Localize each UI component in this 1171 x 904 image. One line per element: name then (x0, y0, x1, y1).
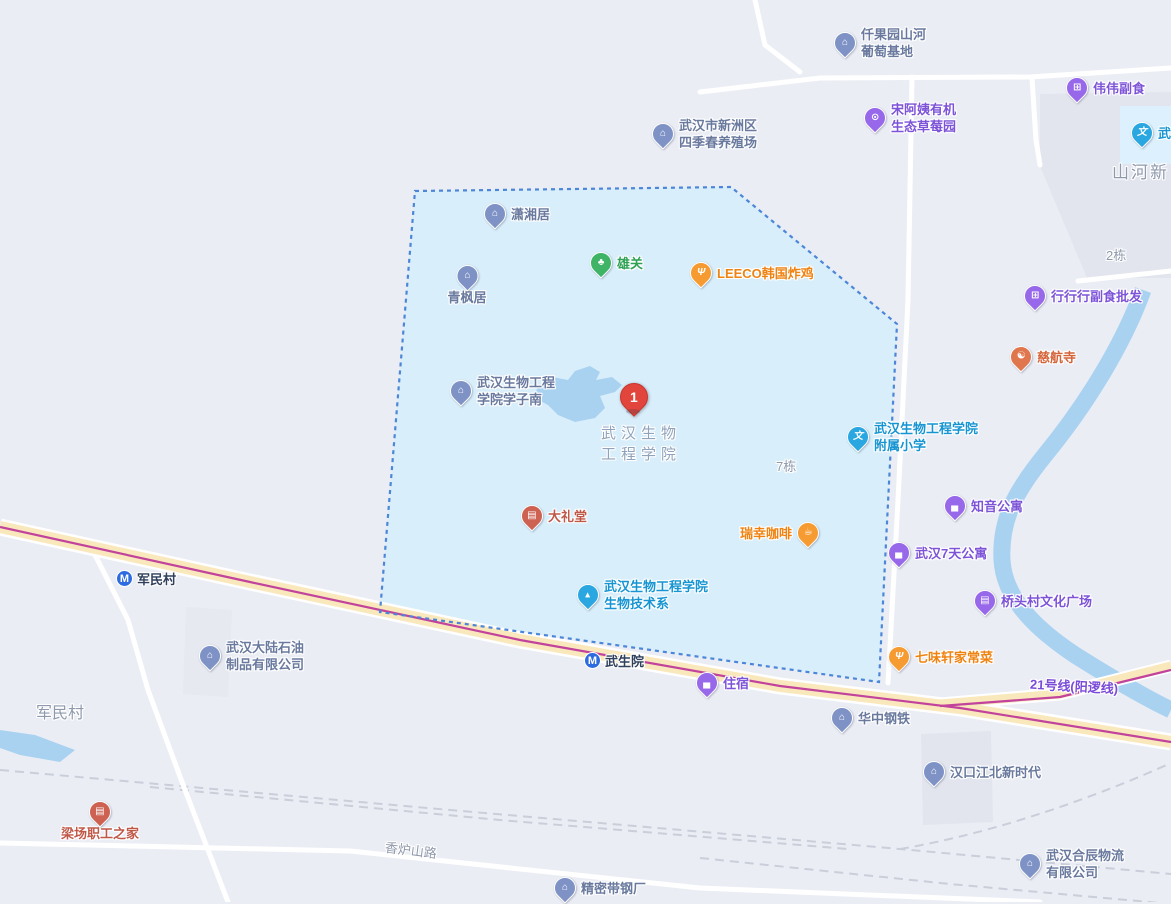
bed-icon: ▄ (939, 490, 970, 521)
building-icon: ⌂ (826, 702, 857, 733)
poi-cihang-temple[interactable]: ☯ 慈航寺 (1010, 346, 1076, 368)
poi-qiaotoucun-culture-square[interactable]: ▤ 桥头村文化广场 (974, 590, 1092, 612)
school-icon: 文 (842, 421, 873, 452)
shopping-cart-icon: ⊞ (1019, 280, 1050, 311)
marker-shadow (626, 409, 640, 414)
poi-xiaoxiangju[interactable]: ⌂ 潇湘居 (484, 203, 550, 225)
food-icon: Ψ (685, 257, 716, 288)
poi-leeco-fried-chicken[interactable]: Ψ LEECO韩国炸鸡 (690, 262, 814, 284)
building-icon: ⌂ (451, 260, 482, 291)
poi-songayi-strawberry-farm[interactable]: ⊙ 宋阿姨有机 生态草莓园 (864, 101, 956, 135)
area-label-shanhexin: 山河新 (1112, 162, 1169, 183)
poi-weiwei-grocery[interactable]: ⊞ 伟伟副食 (1066, 77, 1145, 99)
poi-zhiyin-apartment[interactable]: ▄ 知音公寓 (944, 495, 1023, 517)
bed-icon: ▄ (883, 537, 914, 568)
poi-affiliated-primary-school[interactable]: 文 武汉生物工程学院 附属小学 (847, 420, 978, 454)
poi-hankou-jiangbei[interactable]: ⌂ 汉口江北新时代 (923, 761, 1041, 783)
building-icon: ⌂ (918, 756, 949, 787)
building-icon: ⌂ (1014, 848, 1045, 879)
building-icon: ⌂ (647, 118, 678, 149)
building-icon: ⌂ (445, 375, 476, 406)
controller-icon: ⊙ (859, 102, 890, 133)
poi-school-clipped[interactable]: 文 武 (1131, 122, 1171, 144)
pond (0, 730, 75, 762)
poi-qingfengju[interactable]: ⌂ 青枫居 (447, 265, 486, 306)
area-label-building-2: 2栋 (1106, 245, 1126, 266)
area-label-building-7: 7栋 (776, 456, 796, 477)
poi-sijichun-farm[interactable]: ⌂ 武汉市新洲区 四季春养殖场 (652, 117, 757, 151)
theater-icon: ▤ (84, 796, 115, 827)
area-label-campus-name: 武汉生物 工程学院 (601, 423, 681, 465)
metro-icon: M (116, 570, 133, 587)
school-icon: 文 (1126, 117, 1157, 148)
search-result-marker-1[interactable]: 1 (620, 383, 648, 411)
building-icon: ⌂ (479, 198, 510, 229)
poi-wuhan-7days-apartment[interactable]: ▄ 武汉7天公寓 (888, 542, 987, 564)
graduation-cap-icon: ▴ (572, 579, 603, 610)
poi-lodging[interactable]: ▄ 住宿 (696, 672, 749, 694)
poi-qiweixuan-restaurant[interactable]: Ψ 七味轩家常菜 (888, 646, 993, 668)
poi-dalu-petroleum[interactable]: ⌂ 武汉大陆石油 制品有限公司 (199, 639, 304, 673)
poi-xiongguan[interactable]: ♣ 雄关 (590, 252, 643, 274)
poi-hanghanghang-wholesale[interactable]: ⊞ 行行行副食批发 (1024, 285, 1142, 307)
metro-icon: M (584, 652, 601, 669)
poi-precision-steel-strip-plant[interactable]: ⌂ 精密带钢厂 (554, 877, 646, 899)
theater-icon: ▤ (516, 500, 547, 531)
poi-liangchang-workers-home[interactable]: ▤ 梁场职工之家 (61, 801, 139, 842)
temple-icon: ☯ (1005, 341, 1036, 372)
poi-luckin-coffee[interactable]: ☕ 瑞幸咖啡 (740, 522, 819, 544)
poi-biotech-department[interactable]: ▴ 武汉生物工程学院 生物技术系 (577, 578, 708, 612)
poi-grand-auditorium[interactable]: ▤ 大礼堂 (521, 505, 587, 527)
food-icon: Ψ (883, 641, 914, 672)
poi-huazhong-steel[interactable]: ⌂ 华中钢铁 (831, 707, 910, 729)
map-canvas[interactable]: ⌂ 仟果园山河 葡萄基地 ⊙ 宋阿姨有机 生态草莓园 ⊞ 伟伟副食 文 武 ⌂ … (0, 0, 1171, 902)
poi-hechen-logistics[interactable]: ⌂ 武汉合辰物流 有限公司 (1019, 847, 1124, 881)
area-label-junmincun: 军民村 (36, 703, 84, 724)
building-icon: ⌂ (549, 872, 580, 903)
bed-icon: ▄ (691, 667, 722, 698)
tree-icon: ♣ (585, 247, 616, 278)
coffee-icon: ☕ (792, 517, 823, 548)
building-icon: ⌂ (829, 27, 860, 58)
shopping-cart-icon: ⊞ (1061, 72, 1092, 103)
metro-station-wushengyuan[interactable]: M 武生院 (584, 651, 644, 670)
building-icon: ⌂ (194, 640, 225, 671)
poi-xuezinan[interactable]: ⌂ 武汉生物工程 学院学子南 (450, 374, 555, 408)
poi-qianguoyuan-grape-base[interactable]: ⌂ 仟果园山河 葡萄基地 (834, 26, 926, 60)
culture-icon: ▤ (969, 585, 1000, 616)
metro-station-junmincun[interactable]: M 军民村 (116, 569, 176, 588)
